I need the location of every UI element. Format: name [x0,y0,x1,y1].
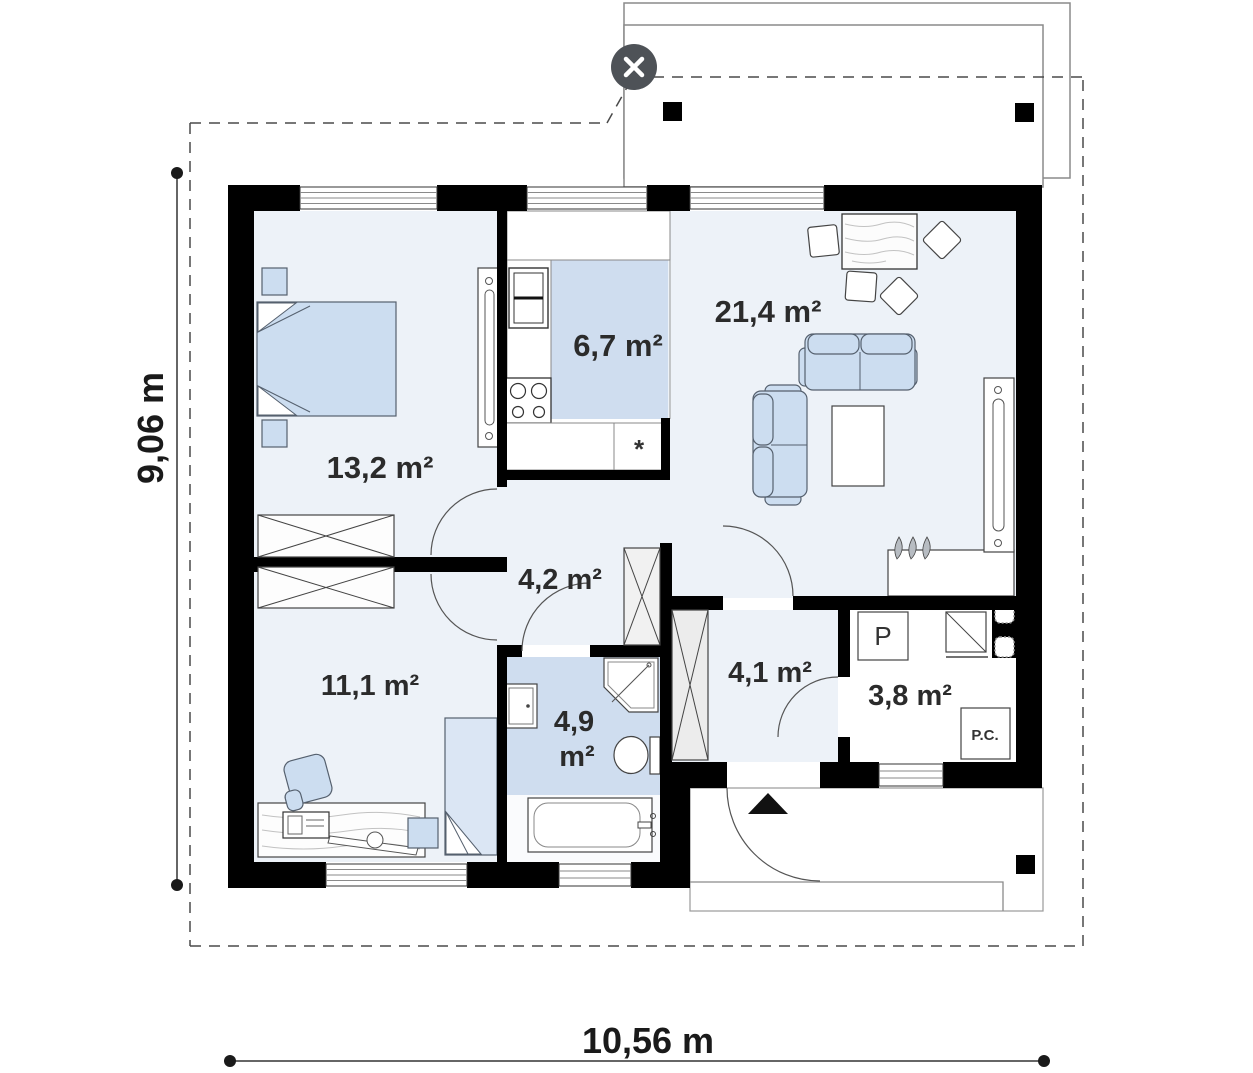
kitchen-area-label: 6,7 m² [573,328,663,363]
heating-unit-label: P.C. [971,727,998,744]
kitchen-counter [507,211,670,260]
terrace-pillar-left [663,102,682,121]
coffee-table [832,406,884,486]
dining-table [842,214,917,269]
bathroom-area-value: 4,9 [554,706,594,738]
terrace-outline-inner [624,25,1043,187]
fridge-icon [509,268,548,328]
close-button[interactable] [611,44,657,90]
porch-pillar [1016,855,1035,874]
wardrobe [624,548,660,645]
wardrobe [258,515,394,557]
sink-marker: * [634,434,645,464]
double-bed [257,302,396,416]
entrance-hall-area-label: 4,1 m² [728,657,812,689]
nightstand [262,420,287,447]
entrance-porch [690,788,1043,911]
window [326,864,467,886]
washing-machine-label: P [874,621,891,651]
utility-area-label: 3,8 m² [868,680,952,712]
stove-icon [506,378,551,423]
height-dimension-label: 9,06 m [130,372,171,484]
terrace [624,3,1070,187]
window [559,864,631,886]
width-dimension-label: 10,56 m [582,1020,714,1061]
wardrobe [258,567,394,608]
hall-area-label: 4,2 m² [518,564,602,596]
sofa [753,385,807,505]
chair [808,225,840,258]
wardrobe [672,610,708,760]
bathtub-icon [528,798,656,852]
single-bed [445,718,497,855]
toilet-icon [614,737,660,775]
dimension-width: 10,56 m [224,1020,1050,1067]
window [879,764,943,786]
sink-icon [505,684,537,728]
nightstand [262,268,287,295]
floor-plan: 9,06 m 10,56 m [0,0,1253,1073]
bathroom-area-unit: m² [559,741,595,773]
mouse [367,832,383,848]
radiator-icon [984,378,1014,552]
living-room-area-label: 21,4 m² [715,294,822,329]
boiler-icon [946,612,988,657]
window [300,187,437,209]
sofa [799,334,917,390]
bedroom-area-label: 13,2 m² [327,450,434,485]
stool [408,818,438,848]
radiator-icon [478,268,500,447]
desk [258,803,425,857]
window [527,187,647,209]
dimension-height: 9,06 m [130,167,183,891]
chair [845,271,877,302]
terrace-pillar-right [1015,103,1034,122]
window [690,187,824,209]
room-area-label: 11,1 m² [321,670,420,702]
floor-plan-viewer: 9,06 m 10,56 m [0,0,1253,1073]
